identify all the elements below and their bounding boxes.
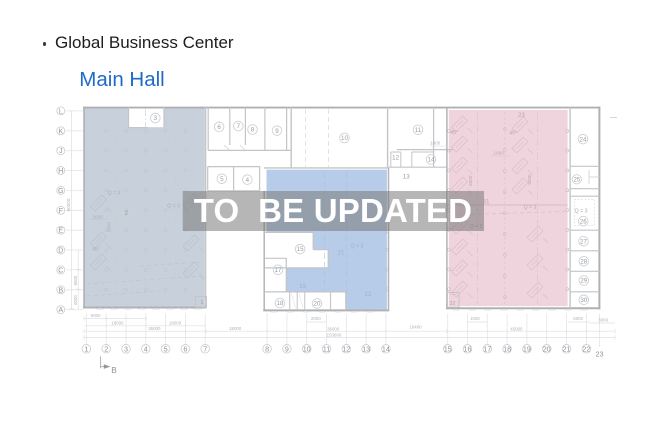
svg-text:B: B <box>111 366 117 375</box>
svg-text:14: 14 <box>428 157 435 164</box>
svg-text:30: 30 <box>580 297 587 304</box>
svg-text:14: 14 <box>382 344 390 353</box>
svg-text:10: 10 <box>341 135 348 142</box>
svg-text:13: 13 <box>403 173 410 180</box>
svg-text:Q = 3: Q = 3 <box>108 190 121 196</box>
svg-text:18: 18 <box>277 300 284 307</box>
svg-text:Q = 3: Q = 3 <box>524 205 537 211</box>
svg-text:8: 8 <box>265 344 269 353</box>
svg-text:9: 9 <box>275 128 279 135</box>
svg-text:6000: 6000 <box>468 175 473 186</box>
svg-text:12: 12 <box>342 344 350 353</box>
svg-text:6000: 6000 <box>73 275 78 285</box>
svg-text:60000: 60000 <box>66 198 71 211</box>
svg-text:45°: 45° <box>450 130 458 136</box>
svg-text:5: 5 <box>164 344 168 353</box>
svg-text:Q = 3: Q = 3 <box>167 204 180 210</box>
svg-text:Q = 3: Q = 3 <box>351 244 364 250</box>
svg-text:2000: 2000 <box>92 214 103 219</box>
svg-text:18: 18 <box>503 344 511 353</box>
svg-text:13: 13 <box>362 344 370 353</box>
svg-text:15: 15 <box>444 344 452 353</box>
svg-text:23: 23 <box>596 349 604 358</box>
svg-text:21: 21 <box>563 344 571 353</box>
svg-text:19: 19 <box>523 344 531 353</box>
svg-text:1000: 1000 <box>493 151 504 156</box>
svg-text:20: 20 <box>543 344 551 353</box>
svg-text:36000: 36000 <box>327 327 340 332</box>
svg-text:3: 3 <box>124 344 128 353</box>
svg-text:3000: 3000 <box>107 221 112 232</box>
svg-text:11: 11 <box>415 127 422 134</box>
svg-text:6: 6 <box>217 124 221 131</box>
svg-text:J: J <box>59 148 62 155</box>
svg-text:3000: 3000 <box>598 317 608 322</box>
svg-text:45°: 45° <box>92 247 100 253</box>
svg-text:H: H <box>58 168 63 175</box>
svg-text:2: 2 <box>104 344 108 353</box>
svg-text:27: 27 <box>580 238 587 245</box>
svg-text:45000: 45000 <box>510 327 523 332</box>
svg-text:153600: 153600 <box>327 332 342 337</box>
svg-text:1: 1 <box>84 344 88 353</box>
svg-text:8: 8 <box>251 127 255 134</box>
svg-text:24: 24 <box>580 136 587 143</box>
svg-text:25: 25 <box>573 177 580 183</box>
svg-text:Q = 3: Q = 3 <box>575 209 588 215</box>
svg-text:D: D <box>58 248 63 255</box>
svg-text:K: K <box>58 128 63 135</box>
svg-text:21: 21 <box>337 250 345 257</box>
svg-text:4: 4 <box>144 344 148 353</box>
svg-text:15: 15 <box>297 246 304 253</box>
svg-text:2: 2 <box>125 210 129 217</box>
svg-text:11: 11 <box>323 344 330 353</box>
svg-text:6000: 6000 <box>573 316 583 321</box>
svg-text:F: F <box>59 208 63 215</box>
svg-text:A: A <box>58 307 63 314</box>
svg-text:G: G <box>58 188 63 195</box>
svg-text:6000: 6000 <box>91 313 101 318</box>
svg-text:1: 1 <box>200 300 203 306</box>
svg-text:B: B <box>58 287 63 294</box>
svg-text:6: 6 <box>183 344 187 353</box>
svg-text:2000: 2000 <box>311 316 321 321</box>
svg-text:1000: 1000 <box>430 141 441 146</box>
svg-text:E: E <box>58 228 63 235</box>
svg-text:16: 16 <box>464 344 472 353</box>
svg-text:22: 22 <box>582 344 590 353</box>
svg-text:3: 3 <box>154 115 158 122</box>
svg-text:6000: 6000 <box>73 295 78 305</box>
svg-text:TO BE UPDATED: TO BE UPDATED <box>194 192 472 229</box>
svg-text:22: 22 <box>364 291 372 298</box>
svg-text:29: 29 <box>580 278 587 285</box>
svg-text:C: C <box>58 267 63 274</box>
svg-text:18000: 18000 <box>169 320 182 325</box>
svg-text:32: 32 <box>449 301 455 307</box>
svg-text:18000: 18000 <box>229 326 242 331</box>
svg-text:36000: 36000 <box>148 326 161 331</box>
svg-text:23: 23 <box>518 112 525 119</box>
svg-text:28: 28 <box>580 258 587 265</box>
svg-text:26: 26 <box>580 218 587 225</box>
svg-text:9: 9 <box>285 344 289 353</box>
svg-text:18000: 18000 <box>111 320 124 325</box>
svg-text:17: 17 <box>275 267 282 274</box>
svg-text:17: 17 <box>483 344 491 353</box>
svg-text:18400: 18400 <box>409 324 422 329</box>
svg-text:7: 7 <box>237 123 241 130</box>
svg-text:12: 12 <box>392 155 399 162</box>
svg-text:4: 4 <box>246 177 250 184</box>
svg-text:20: 20 <box>314 301 321 308</box>
svg-text:L: L <box>59 108 63 115</box>
svg-text:10: 10 <box>303 344 311 353</box>
svg-text:6000: 6000 <box>527 174 532 185</box>
svg-text:45°: 45° <box>509 130 517 136</box>
svg-text:1000: 1000 <box>470 316 480 321</box>
svg-text:7: 7 <box>203 344 207 353</box>
svg-text:5: 5 <box>220 176 224 183</box>
svg-text:19: 19 <box>299 283 307 290</box>
